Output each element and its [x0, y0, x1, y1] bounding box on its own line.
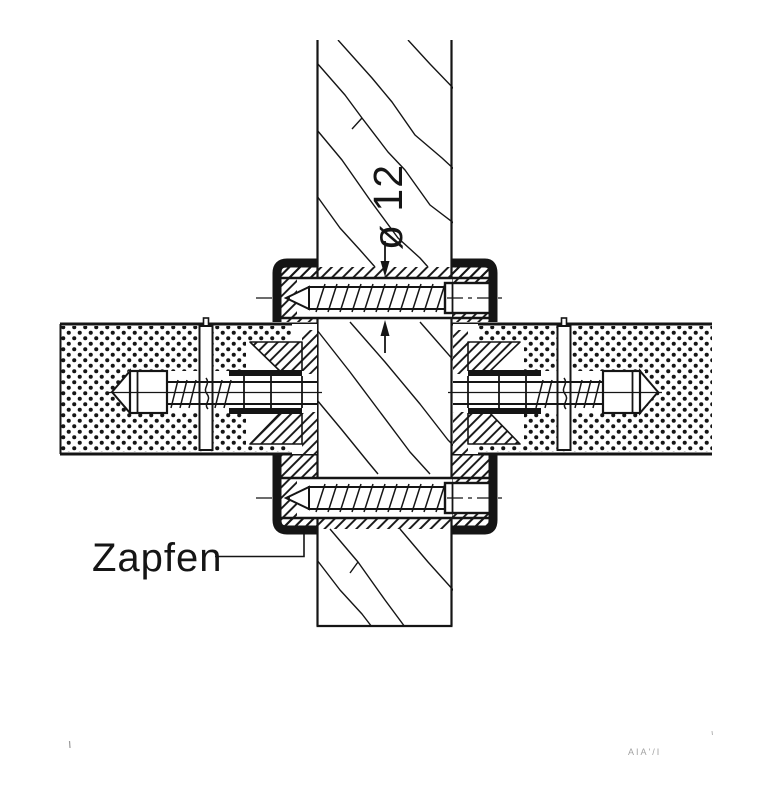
technical-drawing-page: ø 12 Zapfen AIA'/I [0, 0, 762, 800]
scan-artifacts: AIA'/I [70, 731, 713, 757]
cross-dowel-pin [200, 318, 213, 450]
print-artifact-text: AIA'/I [628, 747, 661, 757]
tenon-label: Zapfen [92, 526, 304, 580]
joint-section-drawing: ø 12 Zapfen AIA'/I [0, 0, 762, 800]
scan-speck [712, 731, 713, 735]
diameter-dimension-text: ø 12 [365, 164, 411, 250]
scan-speck [70, 741, 71, 748]
cross-dowel-pin [558, 318, 571, 450]
tenon-label-text: Zapfen [92, 536, 223, 580]
